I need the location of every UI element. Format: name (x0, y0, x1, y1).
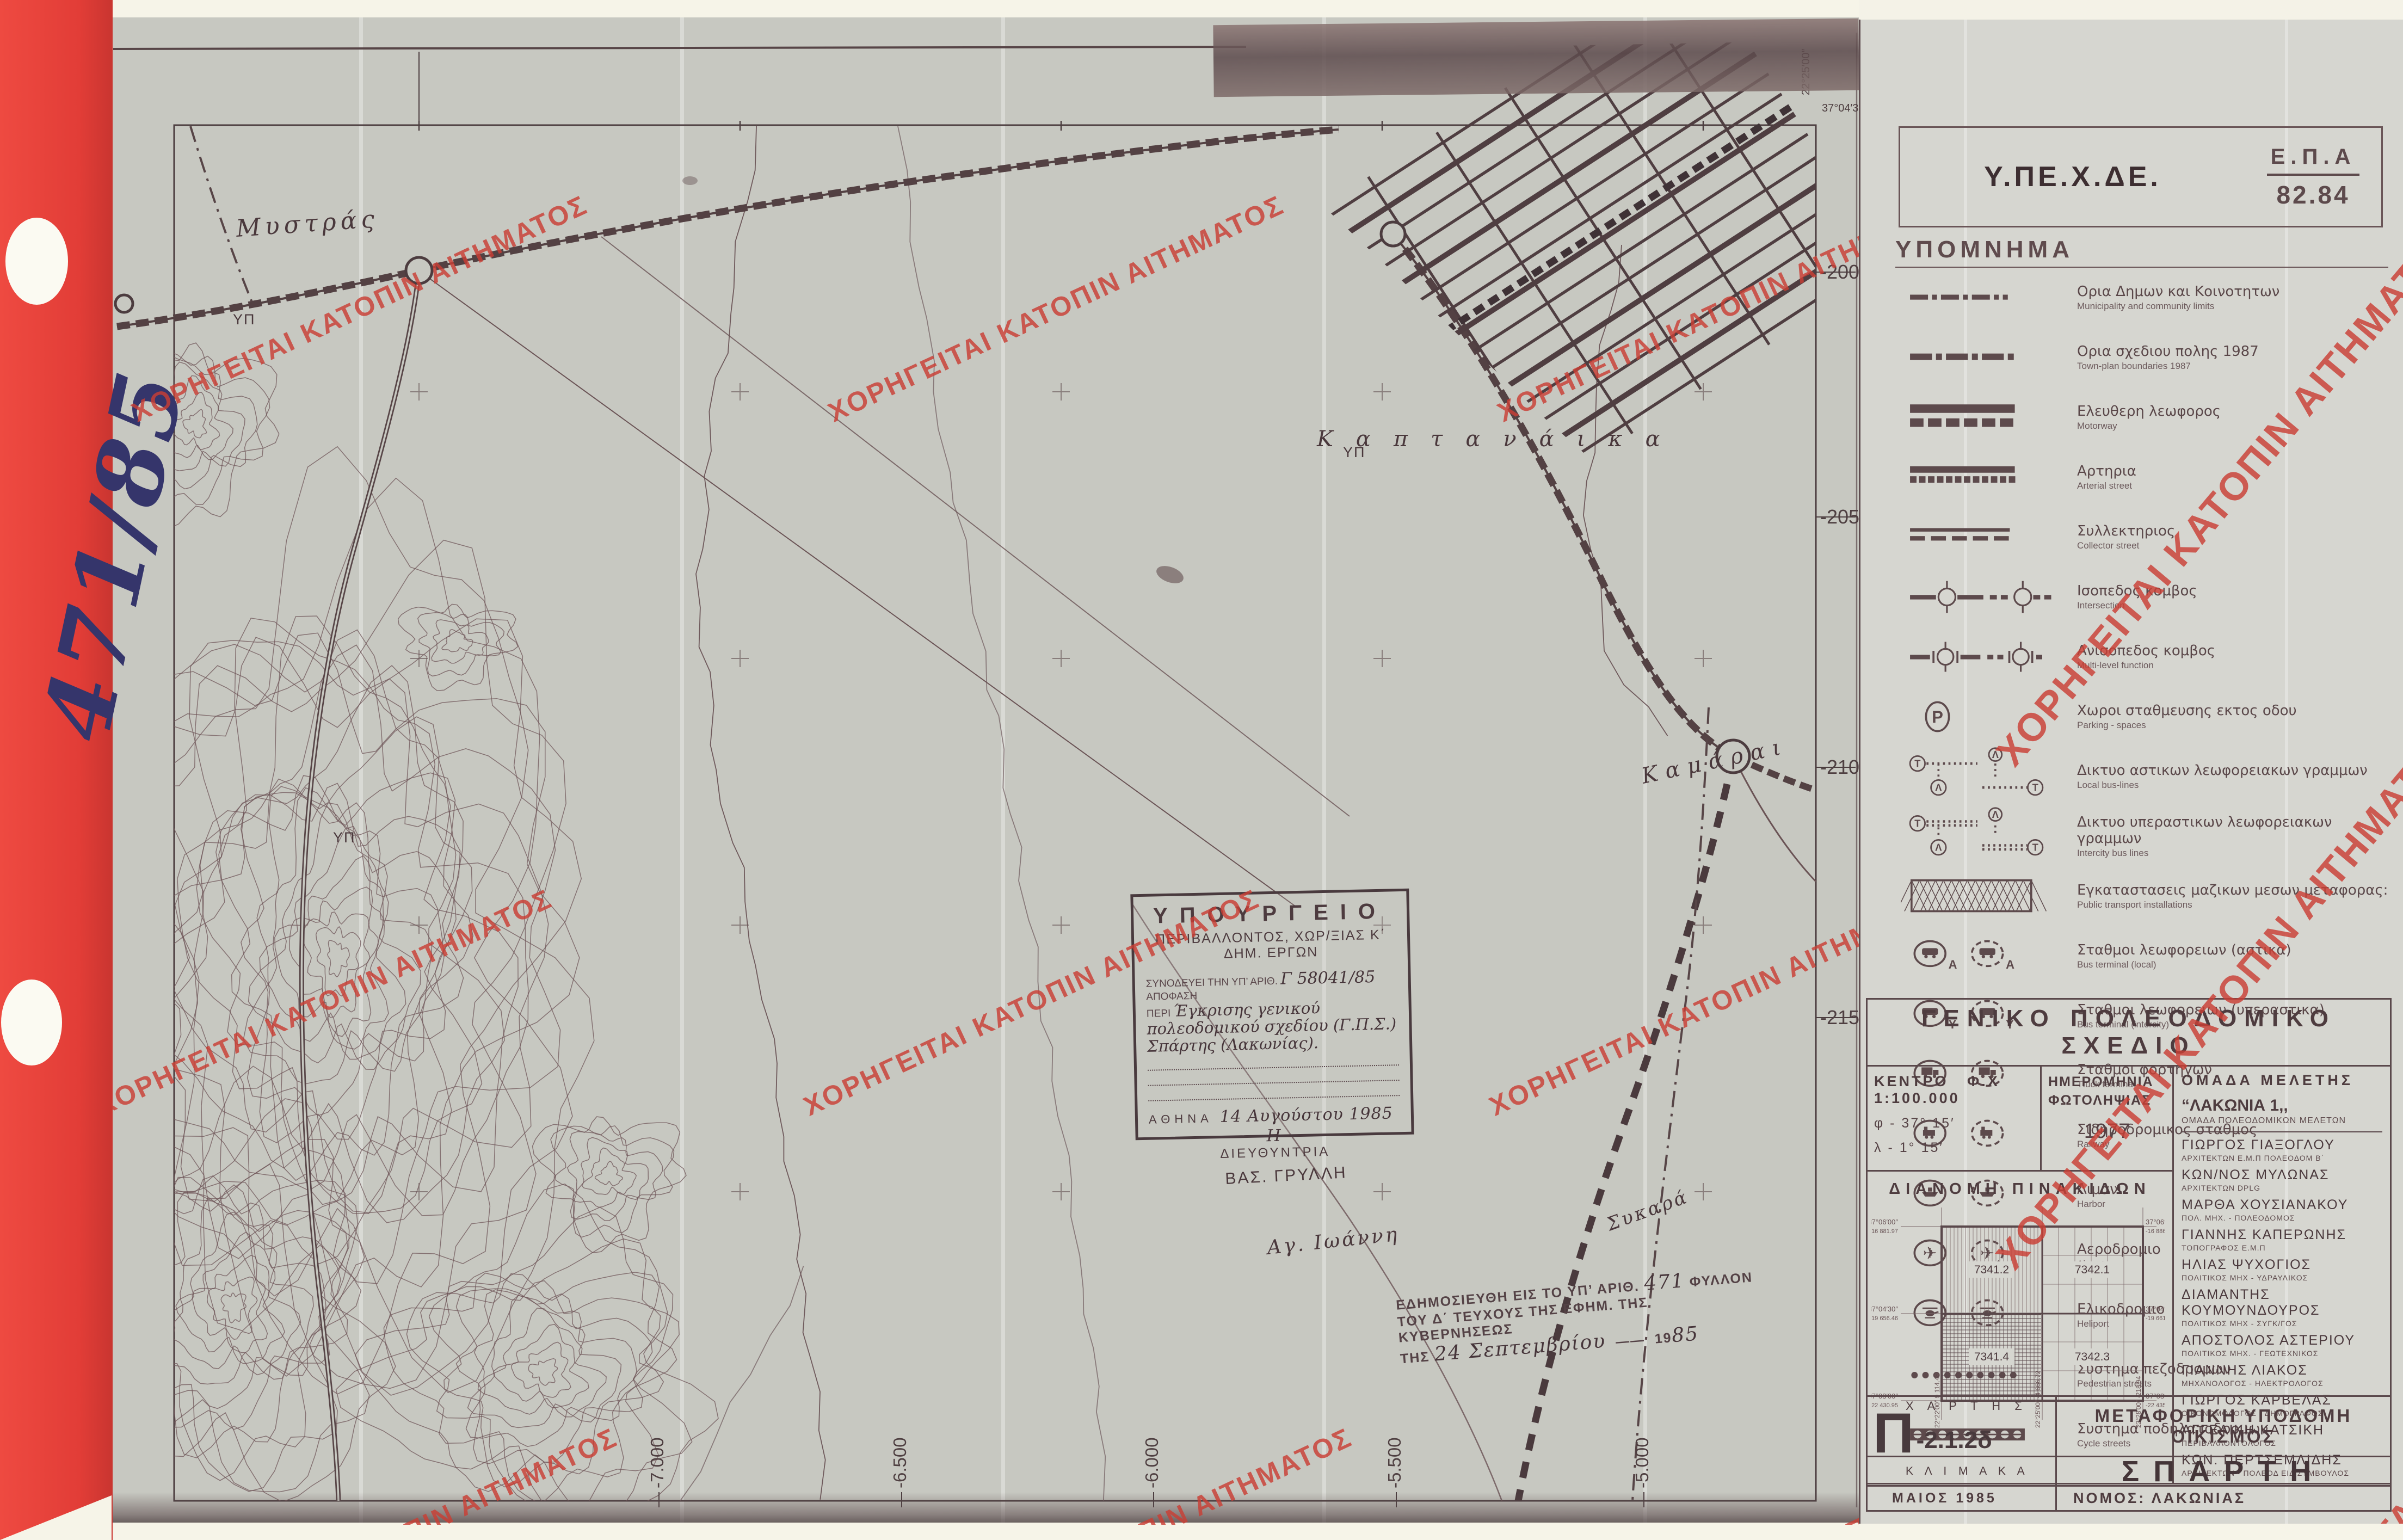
scanner-background (112, 0, 1859, 20)
watermark-text: ΧΟΡΗΓΕΙΤΑΙ ΚΑΤΟΠΙΝ ΑΙΤΗΜΑΤΟΣ (799, 883, 1265, 1122)
watermark-text: ΧΟΡΗΓΕΙΤΑΙ ΚΑΤΟΠΙΝ ΑΙΤΗΜΑΤΟΣ (1988, 211, 2403, 774)
scanner-background-bottom (0, 1523, 2403, 1540)
watermark-text: ΧΟΡΗΓΕΙΤΑΙ ΚΑΤΟΠΙΝ ΑΙΤΗΜΑΤΟΣ (823, 189, 1289, 428)
watermark-layer-panel: ΧΟΡΗΓΕΙΤΑΙ ΚΑΤΟΠΙΝ ΑΙΤΗΜΑΤΟΣΧΟΡΗΓΕΙΤΑΙ Κ… (1860, 20, 2403, 1524)
punch-hole (1, 980, 62, 1065)
scanned-map-document: -20000 -20500 -21000 -21500 -7.000 -6.50… (0, 0, 2403, 1540)
watermark-text: ΧΟΡΗΓΕΙΤΑΙ ΚΑΤΟΠΙΝ ΑΙΤΗΜΑΤΟΣ (1599, 1421, 1859, 1525)
watermark-text: ΧΟΡΗΓΕΙΤΑΙ ΚΑΤΟΠΙΝ ΑΙΤΗΜΑΤΟΣ (2246, 1136, 2403, 1524)
watermark-text: ΧΟΡΗΓΕΙΤΑΙ ΚΑΤΟΠΙΝ ΑΙΤΗΜΑΤΟΣ (1484, 883, 1859, 1122)
watermark-text: ΧΟΡΗΓΕΙΤΑΙ ΚΑΤΟΠΙΝ ΑΙΤΗΜΑΤΟΣ (127, 189, 593, 428)
watermark-text: ΧΟΡΗΓΕΙΤΑΙ ΚΑΤΟΠΙΝ ΑΙΤΗΜΑΤΟΣ (1988, 714, 2403, 1278)
watermark-layer-map: ΧΟΡΗΓΕΙΤΑΙ ΚΑΤΟΠΙΝ ΑΙΤΗΜΑΤΟΣΧΟΡΗΓΕΙΤΑΙ Κ… (112, 17, 1859, 1525)
watermark-text: ΧΟΡΗΓΕΙΤΑΙ ΚΑΤΟΠΙΝ ΑΙΤΗΜΑΤΟΣ (1493, 189, 1859, 428)
binder-bottom-wedge (0, 1495, 112, 1540)
punch-hole (5, 218, 68, 305)
watermark-text: ΧΟΡΗΓΕΙΤΑΙ ΚΑΤΟΠΙΝ ΑΙΤΗΜΑΤΟΣ (891, 1421, 1357, 1525)
legend-panel-sheet: Υ.ΠΕ.Χ.ΔΕ. Ε.Π.Α 82.84 ΥΠΟΜΝΗΜΑ Ορια Δημ… (1859, 20, 2403, 1524)
watermark-text: ΧΟΡΗΓΕΙΤΑΙ ΚΑΤΟΠΙΝ ΑΙΤΗΜΑΤΟΣ (112, 883, 557, 1122)
binder-strip: 471/85 (0, 0, 113, 1540)
watermark-text: ΧΟΡΗΓΕΙΤΑΙ ΚΑΤΟΠΙΝ ΑΙΤΗΜΑΤΟΣ (157, 1421, 623, 1525)
